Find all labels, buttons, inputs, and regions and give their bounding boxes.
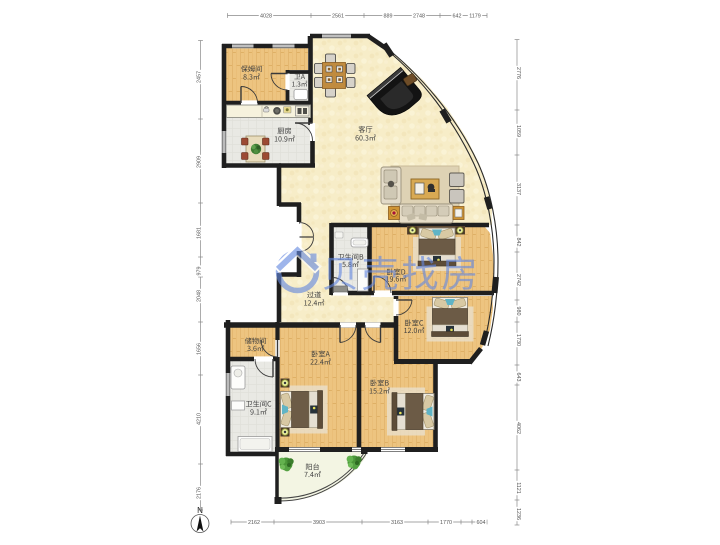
svg-text:1770: 1770	[440, 520, 452, 526]
svg-text:2909: 2909	[197, 156, 203, 168]
svg-text:2742: 2742	[515, 274, 521, 286]
svg-text:642: 642	[453, 13, 462, 19]
svg-text:3137: 3137	[515, 183, 521, 195]
svg-text:2457: 2457	[197, 71, 203, 83]
svg-text:2048: 2048	[197, 290, 203, 302]
svg-text:842: 842	[515, 238, 521, 247]
svg-text:3163: 3163	[391, 520, 403, 526]
svg-text:1681: 1681	[197, 227, 203, 239]
svg-text:4028: 4028	[260, 13, 272, 19]
svg-text:1121: 1121	[515, 482, 521, 494]
svg-text:4062: 4062	[515, 422, 521, 434]
svg-text:N: N	[197, 506, 203, 515]
svg-text:1059: 1059	[515, 125, 521, 137]
svg-text:1730: 1730	[515, 334, 521, 346]
svg-text:979: 979	[197, 267, 203, 276]
svg-text:889: 889	[384, 13, 393, 19]
svg-text:2162: 2162	[248, 520, 260, 526]
svg-text:2176: 2176	[197, 487, 203, 499]
svg-text:604: 604	[477, 520, 486, 526]
svg-text:1236: 1236	[515, 508, 521, 520]
svg-text:1656: 1656	[197, 343, 203, 355]
svg-text:2561: 2561	[332, 13, 344, 19]
svg-text:2748: 2748	[413, 13, 425, 19]
svg-text:4210: 4210	[197, 413, 203, 425]
svg-text:1179: 1179	[469, 13, 481, 19]
svg-text:980: 980	[515, 307, 521, 316]
svg-text:643: 643	[515, 373, 521, 382]
svg-text:2776: 2776	[515, 67, 521, 79]
svg-text:3903: 3903	[313, 520, 325, 526]
